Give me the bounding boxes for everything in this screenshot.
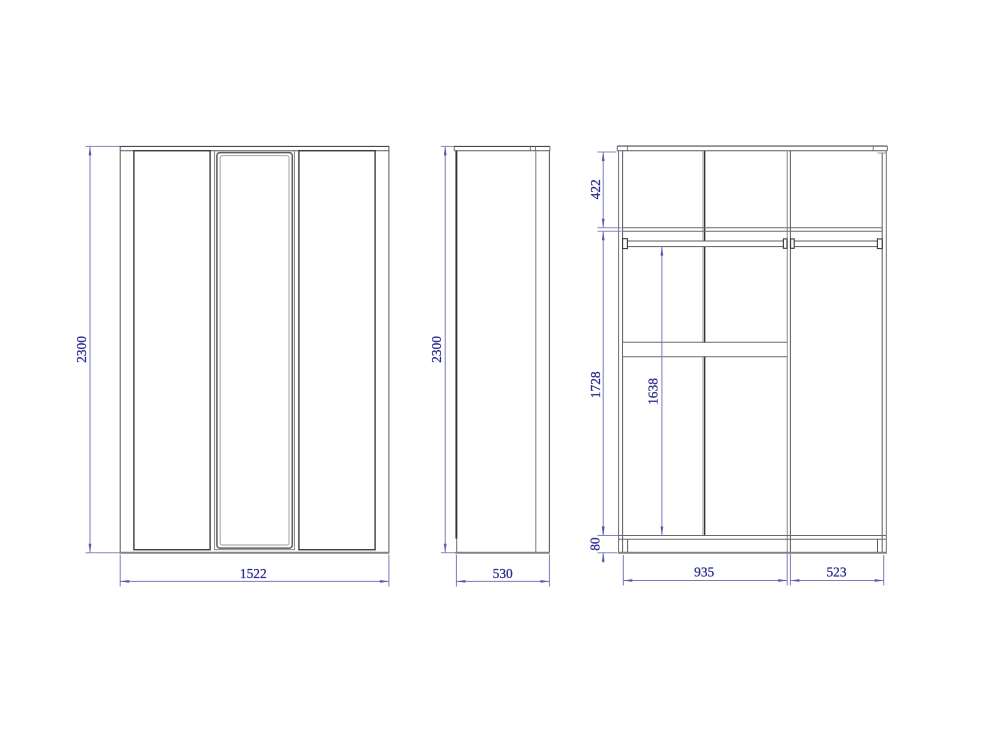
svg-text:80: 80	[587, 537, 602, 551]
svg-text:2300: 2300	[74, 336, 89, 363]
svg-text:1728: 1728	[588, 371, 603, 398]
svg-text:1522: 1522	[240, 566, 267, 581]
svg-text:2300: 2300	[429, 336, 444, 363]
svg-text:422: 422	[588, 179, 603, 199]
svg-text:935: 935	[694, 564, 714, 579]
svg-text:1638: 1638	[646, 378, 661, 405]
svg-text:530: 530	[493, 566, 513, 581]
svg-text:523: 523	[826, 564, 846, 579]
